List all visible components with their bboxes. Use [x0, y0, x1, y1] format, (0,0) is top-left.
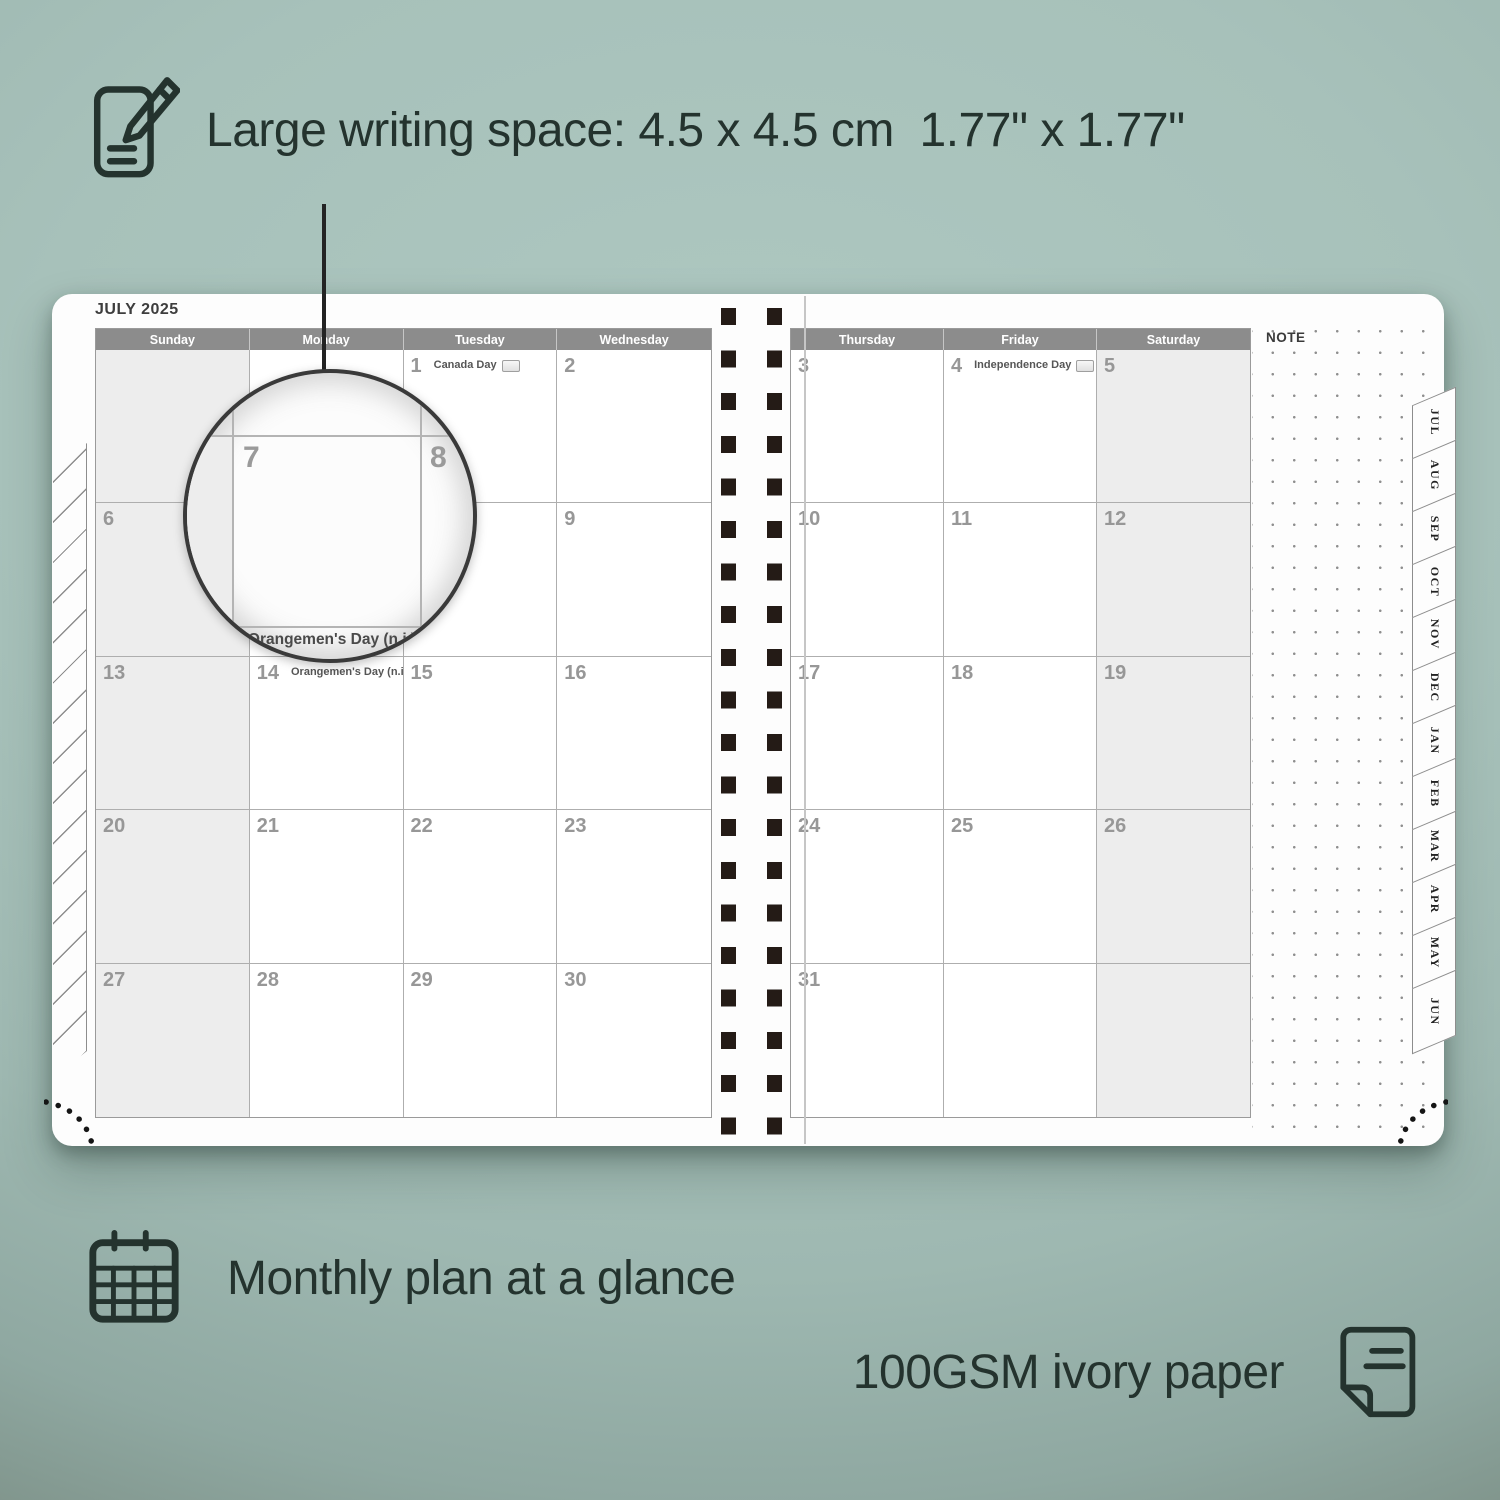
- calendar-cell: 16: [557, 657, 711, 810]
- day-number: 30: [564, 969, 586, 991]
- holiday-label: Orangemen's Day (n.i.): [291, 666, 404, 678]
- holiday-label: Independence Day: [974, 359, 1071, 371]
- magnified-gridline: [187, 435, 473, 437]
- day-number: 20: [103, 815, 125, 837]
- note-label: NOTE: [1266, 330, 1306, 345]
- day-number: 18: [951, 662, 973, 684]
- day-header: Saturday: [1097, 329, 1250, 350]
- pointer-line: [322, 204, 326, 374]
- day-header: Wednesday: [557, 329, 711, 350]
- calendar-cell: 11: [944, 503, 1097, 656]
- calendar-cell: [1097, 964, 1250, 1117]
- day-header: Sunday: [96, 329, 250, 350]
- product-image: Large writing space: 4.5 x 4.5 cm 1.77" …: [0, 0, 1500, 1500]
- day-number: 10: [798, 508, 820, 530]
- day-number: 12: [1104, 508, 1126, 530]
- day-number: 23: [564, 815, 586, 837]
- day-number: 11: [951, 508, 972, 530]
- annotation-monthly-plan: Monthly plan at a glance: [85, 1228, 735, 1328]
- day-header: Tuesday: [404, 329, 558, 350]
- calendar-cell: 13: [96, 657, 250, 810]
- month-tabs: JULAUGSEPOCTNOVDECJANFEBMARAPRMAYJUN: [1412, 397, 1456, 1045]
- day-number: 27: [103, 969, 125, 991]
- day-header: Thursday: [791, 329, 944, 350]
- magnified-gridline: [232, 373, 234, 659]
- magnifier-circle: 7 8 Orangemen's Day (n.i.): [183, 369, 477, 663]
- day-number: 28: [257, 969, 279, 991]
- day-number: 25: [951, 815, 973, 837]
- calendar-cell: 12: [1097, 503, 1250, 656]
- day-number: 9: [564, 508, 575, 530]
- calendar-cell: 4Independence Day: [944, 350, 1097, 503]
- day-number: 21: [257, 815, 279, 837]
- calendar-cell: 30: [557, 964, 711, 1117]
- magnified-gridline: [187, 626, 473, 628]
- calendar-cell: 18: [944, 657, 1097, 810]
- day-number: 15: [411, 662, 433, 684]
- calendar-cell: 14Orangemen's Day (n.i.): [250, 657, 404, 810]
- day-number: 26: [1104, 815, 1126, 837]
- calendar-cell: 31: [791, 964, 944, 1117]
- magnified-gridline: [420, 373, 422, 659]
- magnified-holiday-label: Orangemen's Day (n.i.): [207, 631, 457, 649]
- flag-badge-icon: [502, 360, 520, 372]
- calendar-cell: 22: [404, 810, 558, 963]
- calendar-cell: 25: [944, 810, 1097, 963]
- calendar-cell: 20: [96, 810, 250, 963]
- day-number: 31: [798, 969, 820, 991]
- calendar-cell: 15: [404, 657, 558, 810]
- spiral-binding-right-column: [767, 308, 782, 1135]
- day-header-row: ThursdayFridaySaturday: [791, 329, 1250, 350]
- calendar-cell: 9: [557, 503, 711, 656]
- day-number: 4: [951, 355, 962, 377]
- calendar-cell: 23: [557, 810, 711, 963]
- flag-badge-icon: [1076, 360, 1094, 372]
- day-number: 22: [411, 815, 433, 837]
- corner-dots-right: [1384, 1094, 1448, 1152]
- annotation-paper: 100GSM ivory paper: [853, 1322, 1422, 1422]
- day-number: 13: [103, 662, 125, 684]
- annotation-text: Large writing space: 4.5 x 4.5 cm 1.77" …: [206, 103, 1185, 158]
- day-header: Monday: [250, 329, 404, 350]
- day-number: 5: [1104, 355, 1115, 377]
- annotation-writing-space: Large writing space: 4.5 x 4.5 cm 1.77" …: [88, 74, 1185, 186]
- calendar-cell: 28: [250, 964, 404, 1117]
- holiday-label: Canada Day: [434, 359, 497, 371]
- calendar-cell: 17: [791, 657, 944, 810]
- calendar-cell: 10: [791, 503, 944, 656]
- day-number: 19: [1104, 662, 1126, 684]
- day-number: 24: [798, 815, 820, 837]
- day-number: 2: [564, 355, 575, 377]
- calendar-cell: 21: [250, 810, 404, 963]
- calendar-cell: 19: [1097, 657, 1250, 810]
- right-calendar-table: ThursdayFridaySaturday 3 4Independence D…: [790, 328, 1251, 1118]
- day-number: 17: [798, 662, 820, 684]
- page-edge-hatching: [53, 443, 87, 1078]
- calendar-cell: 3: [791, 350, 944, 503]
- calendar-cell: 26: [1097, 810, 1250, 963]
- day-number: 29: [411, 969, 433, 991]
- day-header: Friday: [944, 329, 1097, 350]
- center-fold-line: [804, 296, 806, 1144]
- calendar-grid: 3 4Independence Day 5 10 11 12 17 18 19: [791, 350, 1250, 1117]
- calendar-cell: 29: [404, 964, 558, 1117]
- calendar-cell: 5: [1097, 350, 1250, 503]
- paper-sheet-icon: [1326, 1322, 1422, 1422]
- calendar-cell: [944, 964, 1097, 1117]
- annotation-text: 100GSM ivory paper: [853, 1345, 1284, 1400]
- month-title: JULY 2025: [95, 301, 179, 319]
- calendar-grid-icon: [85, 1228, 183, 1328]
- calendar-cell: 27: [96, 964, 250, 1117]
- day-number: 6: [103, 508, 114, 530]
- magnified-day-number: 8: [430, 441, 447, 475]
- corner-dots-left: [44, 1094, 108, 1152]
- spiral-binding-left-column: [721, 308, 736, 1135]
- calendar-cell: 24: [791, 810, 944, 963]
- magnified-day-number: 7: [243, 441, 260, 475]
- annotation-text: Monthly plan at a glance: [227, 1251, 735, 1306]
- calendar-cell: 2: [557, 350, 711, 503]
- magnified-shaded-column: [187, 435, 232, 629]
- pencil-note-icon: [88, 74, 180, 186]
- day-number: 16: [564, 662, 586, 684]
- day-header-row: SundayMondayTuesdayWednesday: [96, 329, 711, 350]
- day-number: 14: [257, 662, 279, 684]
